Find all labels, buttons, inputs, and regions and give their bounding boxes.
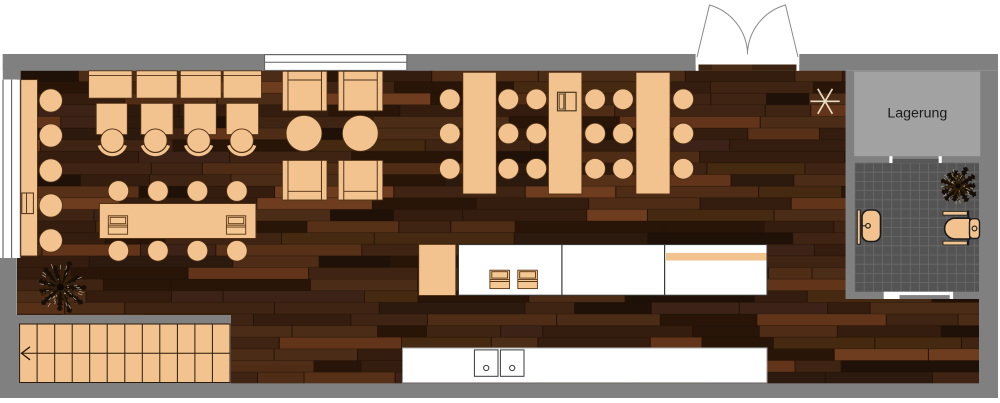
- svg-text:Lagerung: Lagerung: [887, 106, 947, 122]
